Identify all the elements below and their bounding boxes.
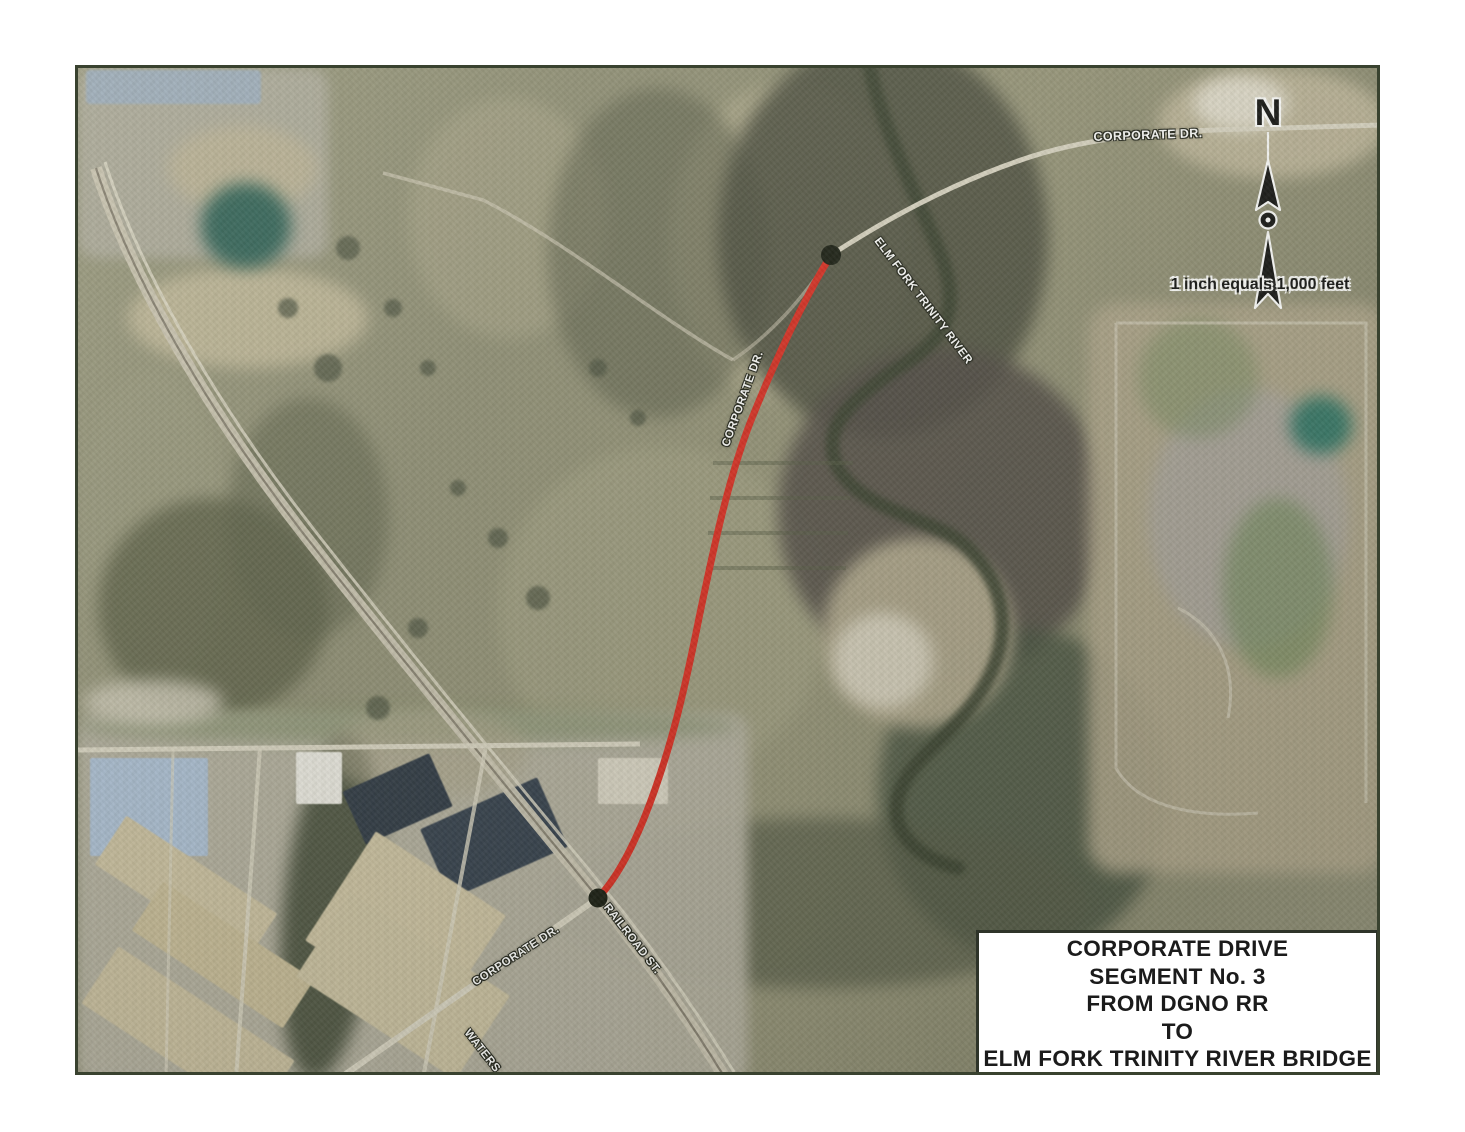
map-vector-overlay [78, 68, 1380, 1075]
farm-road [383, 173, 733, 360]
aerial-map: CORPORATE DR. ELM FORK TRINITY RIVER COR… [75, 65, 1380, 1075]
title-line-2: SEGMENT No. 3 [1089, 963, 1265, 991]
route-line [598, 255, 831, 898]
map-scale-text: 1 inch equals 1,000 feet [1171, 276, 1350, 294]
exhibit-page: CORPORATE DR. ELM FORK TRINITY RIVER COR… [0, 0, 1465, 1132]
title-line-3: FROM DGNO RR [1086, 990, 1268, 1018]
north-arrow-label: N [1255, 92, 1282, 134]
elm-fork-trinity-river-channel [832, 68, 1002, 868]
route-endpoint-north [821, 245, 841, 265]
title-line-5: ELM FORK TRINITY RIVER BRIDGE [983, 1045, 1371, 1073]
title-block: CORPORATE DRIVE SEGMENT No. 3 FROM DGNO … [976, 930, 1379, 1075]
street-grid [78, 744, 640, 1075]
landfill-roads [1116, 323, 1366, 814]
title-line-4: TO [1162, 1018, 1193, 1046]
tree-clumps [278, 236, 646, 720]
title-line-1: CORPORATE DRIVE [1067, 935, 1289, 963]
